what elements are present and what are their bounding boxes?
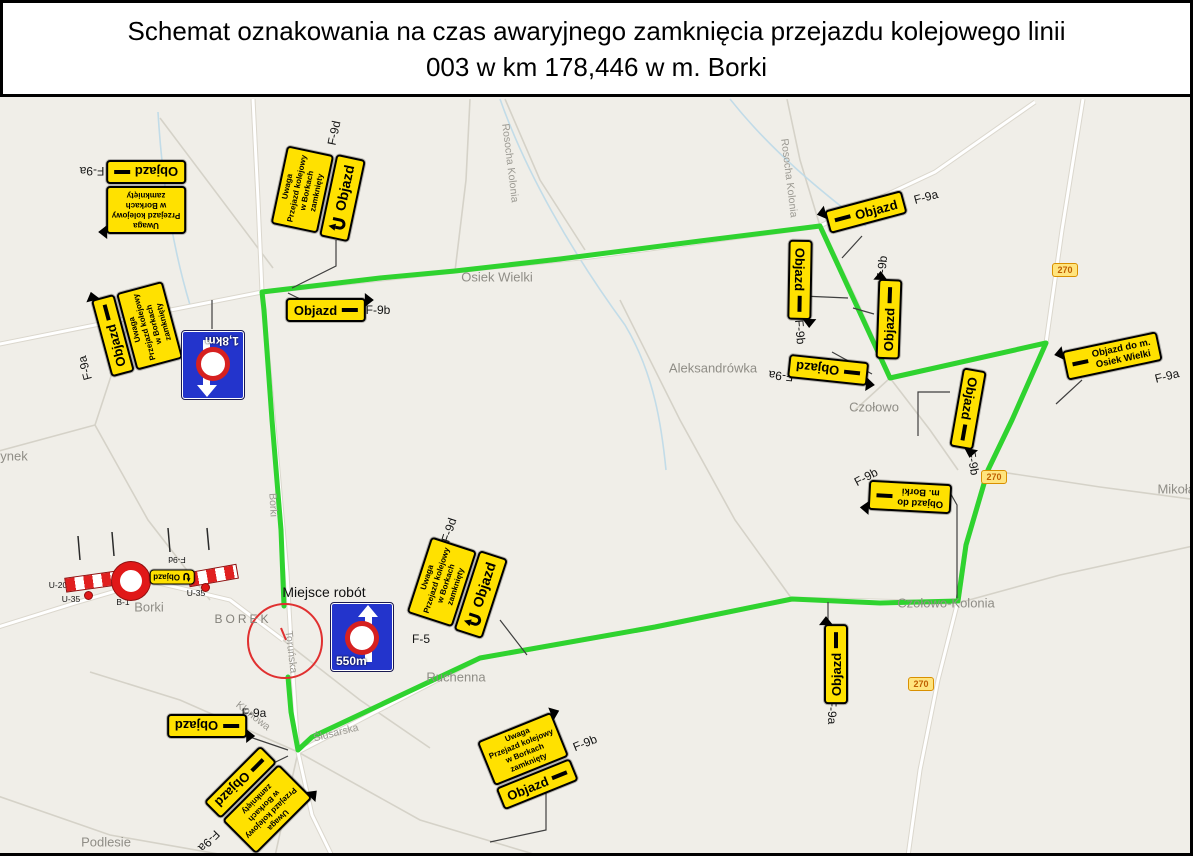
arrow-right-icon	[960, 425, 967, 441]
warning-line-1: Uwaga	[133, 220, 159, 230]
cluster-w-f9a: ObjazdUwagaPrzejazd kolejowyw Borkachzam…	[91, 281, 183, 378]
arrow-right-icon	[834, 632, 838, 648]
place-label-mikolaj: Mikołajew	[1157, 482, 1193, 497]
objazd-label: Objazd	[153, 573, 180, 582]
f5-closure-ring-icon	[345, 621, 379, 655]
sign-f9b-osiek: Objazd	[286, 298, 366, 322]
sign-ref-label: F-9d	[325, 119, 344, 146]
f5-detour-board: 1,8km	[182, 331, 244, 399]
objazd-label: Objazd	[469, 560, 499, 609]
detour-sign-objazd: Objazd	[824, 624, 848, 704]
detour-sign-objazd: Objazd	[286, 298, 366, 322]
cluster-s-f9b: UwagaPrzejazd kolejowyw Borkachzamknięty…	[477, 712, 579, 811]
title-line-2: 003 w km 178,446 w m. Borki	[426, 49, 767, 85]
arrow-right-icon	[103, 304, 111, 320]
sign-ref-label: F-5	[412, 632, 430, 646]
detour-sign-objazd: Objazd	[949, 367, 987, 450]
cluster-n-f9d: UwagaPrzejazd kolejowyw Borkachzamknięty…	[270, 144, 366, 242]
objazd-label: Objazd	[853, 196, 899, 222]
sign-f9b-vert-east: Objazd	[876, 278, 903, 359]
arrow-right-icon	[342, 308, 358, 312]
scheme-title: Schemat oznakowania na czas awaryjnego z…	[0, 0, 1193, 97]
objazd-label: Objazd	[135, 165, 178, 180]
place-label-rosocha-kolonia-west: Rosocha Kolonia	[499, 123, 521, 203]
sign-dest-borki: Objazd dom. Borki	[868, 480, 952, 514]
sign-f9b-vert-west: Objazd	[787, 240, 812, 321]
place-label-street-torunska: Toruńska	[282, 630, 299, 674]
arrow-left-icon	[1072, 359, 1088, 366]
detour-sign-objazd: Objazd	[787, 354, 869, 386]
warning-sign-crossing-closed: UwagaPrzejazd kolejowyw Borkachzamknięty	[106, 186, 186, 234]
cluster-nw-f9a: UwagaPrzejazd kolejowyw Borkachzamknięty…	[106, 160, 186, 234]
objazd-label: Objazd	[880, 308, 897, 352]
sign-ref-label: F-9a	[75, 354, 95, 381]
arrow-left-icon	[834, 214, 850, 222]
detour-sign-objazd: Objazd	[106, 160, 186, 184]
page: Schemat oznakowania na czas awaryjnego z…	[0, 0, 1193, 856]
sign-f9a-czolowo: Objazd	[787, 354, 869, 386]
warning-line-4: zamknięty	[127, 190, 166, 200]
detour-sign-objazd-mini: Objazd	[149, 570, 194, 585]
sign-f5-north: 1,8km	[182, 331, 244, 399]
destination-lines: Objazd do m.Osiek Wielki	[1091, 337, 1154, 371]
sign-ref-label: F-9a	[912, 187, 939, 207]
sign-f9b-vert-270: Objazd	[949, 367, 987, 450]
place-label-aleksandrowka: Aleksandrówka	[669, 361, 757, 376]
u-turn-arrow-icon	[461, 609, 484, 630]
sign-dest-osiek: Objazd do m.Osiek Wielki	[1062, 331, 1163, 380]
sign-ref-label: U-35	[62, 594, 80, 604]
place-label-borki-village: Borki	[134, 600, 164, 615]
destination-line-2: m. Borki	[902, 486, 941, 499]
arrow-left-icon	[250, 758, 264, 772]
arrow-right-icon	[552, 770, 568, 780]
place-label-street-borki: Borki	[266, 493, 279, 518]
sign-f9d-barrier: Objazd	[149, 570, 194, 585]
detour-sign-objazd: Objazd	[787, 240, 812, 321]
arrow-right-icon	[888, 287, 893, 303]
detour-sign-objazd: Objazd	[876, 278, 903, 359]
place-label-podlesie: Podlesie	[81, 835, 131, 850]
place-label-osiek-wielki: Osiek Wielki	[461, 270, 533, 285]
warning-lamp-right	[201, 583, 210, 592]
f5-detour-board: 550m	[331, 603, 393, 671]
arrow-right-icon	[876, 493, 892, 498]
detour-sign-objazd: Objazd	[167, 714, 247, 738]
arrow-left-icon	[844, 370, 860, 376]
f5-distance: 550m	[336, 654, 367, 668]
road-number-badge: 270	[1052, 263, 1078, 277]
place-label-rynek-partial: ynek	[0, 449, 27, 464]
road-number-badge: 270	[981, 470, 1007, 484]
place-label-czolowo: Czołowo	[849, 400, 899, 415]
objazd-label: Objazd	[103, 323, 129, 369]
sign-ref-label: F-9a	[1153, 366, 1180, 386]
sign-f9a-ne: Objazd	[824, 190, 908, 234]
sign-f9a-sw: Objazd	[167, 714, 247, 738]
sign-ref-label: F-9a	[80, 164, 105, 178]
warning-lamp-left	[84, 591, 93, 600]
u-turn-arrow-icon	[326, 214, 348, 234]
f5-closure-ring-icon	[196, 347, 230, 381]
barrier-board-right	[187, 564, 239, 587]
objazd-label: Objazd	[294, 303, 337, 318]
no-entry-sign-b1	[112, 562, 150, 600]
place-label-borek: BOREK	[214, 612, 271, 626]
place-label-ruchenna: Ruchenna	[426, 670, 485, 685]
warning-line-2: Przejazd kolejowy	[112, 210, 180, 220]
f5-distance: 1,8km	[205, 334, 239, 348]
objazd-label: Objazd	[795, 359, 840, 378]
destination-lines: Objazd dom. Borki	[897, 485, 944, 509]
arrow-right-icon	[114, 170, 130, 174]
sign-ref-label: F-9d	[168, 555, 185, 565]
objazd-label: Objazd	[332, 163, 357, 212]
title-line-1: Schemat oznakowania na czas awaryjnego z…	[128, 13, 1066, 49]
objazd-label: Objazd	[829, 653, 844, 696]
sign-ref-label: F-9a	[195, 827, 222, 854]
sign-f5-south: 550m	[331, 603, 393, 671]
arrow-left-icon	[223, 724, 239, 728]
objazd-label: Objazd	[959, 376, 981, 421]
cluster-center-f9d: UwagaPrzejazd kolejowyw Borkachzamknięty…	[406, 535, 508, 639]
place-label-czolowo-kolonia: Czołowo-Kolonia	[897, 596, 995, 611]
detour-destination-sign: Objazd do m.Osiek Wielki	[1062, 331, 1163, 380]
arrow-right-icon	[797, 296, 801, 312]
sign-f9a-vert-south: Objazd	[824, 624, 848, 704]
place-label-street-slusarska: Ślusarska	[312, 722, 360, 745]
objazd-label: Objazd	[792, 248, 808, 292]
detour-destination-sign: Objazd dom. Borki	[868, 480, 952, 514]
objazd-label: Objazd	[175, 719, 218, 734]
u-turn-arrow-icon	[182, 572, 191, 582]
map-overlay: Miejsce robót Rosocha KoloniaRosocha Kol…	[0, 0, 1193, 856]
worksite-label: Miejsce robót	[282, 584, 365, 600]
place-label-rosocha-kolonia-east: Rosocha Kolonia	[778, 138, 800, 218]
road-number-badge: 270	[908, 677, 934, 691]
warning-line-3: w Borkach	[126, 200, 166, 210]
sign-ref-label: F-9b	[571, 732, 599, 754]
detour-sign-objazd: Objazd	[824, 190, 908, 234]
